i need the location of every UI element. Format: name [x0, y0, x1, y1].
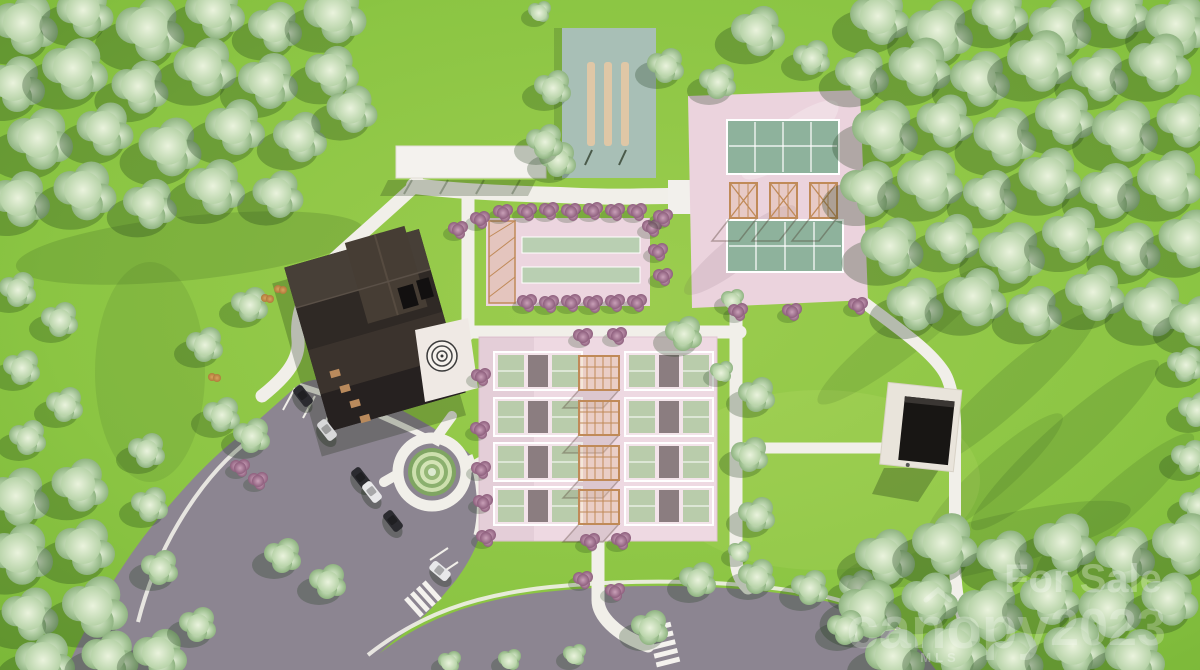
pickleball-pad [479, 337, 717, 542]
bocce-pad [486, 218, 650, 306]
patio [415, 318, 478, 402]
spiral-garden [408, 448, 456, 496]
shuffleboard-lane [587, 62, 595, 146]
aerial-site-plan: For Sale canopy MLS 2023 [0, 0, 1200, 670]
bocce-lane [522, 237, 640, 253]
pickleball-court [625, 487, 713, 525]
watermark-for-sale: For Sale [1004, 557, 1162, 601]
site-render: For Sale canopy MLS 2023 [0, 0, 1200, 670]
tennis-court [727, 120, 839, 174]
shuffleboard-lane [604, 62, 612, 146]
bocce-lane [522, 267, 640, 283]
pickleball-court [625, 352, 713, 390]
pickleball-court [625, 398, 713, 436]
watermark-year: 2023 [1050, 599, 1166, 657]
tennis-court [727, 220, 843, 272]
watermark-mls: MLS [920, 650, 959, 665]
pickleball-court [494, 352, 582, 390]
shuffleboard-lane [621, 62, 629, 146]
pickleball-court [625, 443, 713, 481]
trellis [489, 221, 515, 303]
